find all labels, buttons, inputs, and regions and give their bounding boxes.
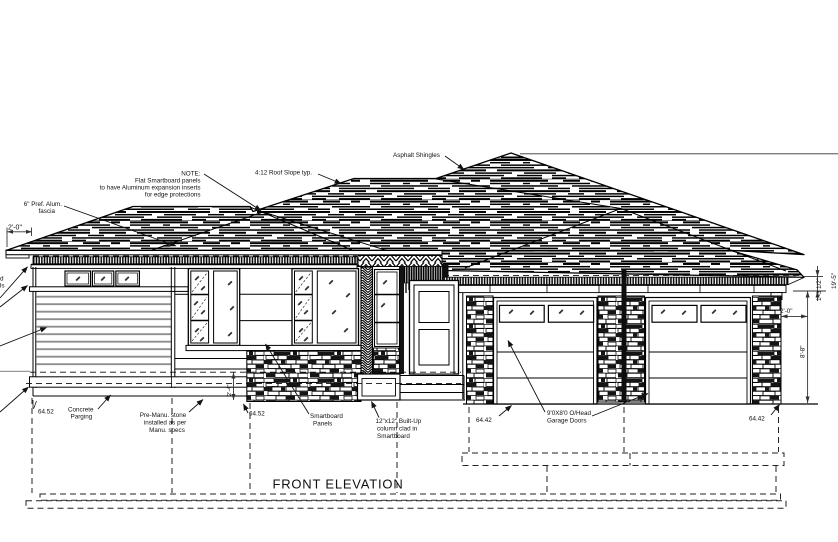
svg-text:Panels: Panels [313, 421, 332, 428]
svg-text:Concrete: Concrete [68, 407, 94, 414]
svg-text:Smartboard: Smartboard [377, 433, 410, 440]
svg-text:fascia: fascia [39, 208, 56, 215]
svg-text:64.52: 64.52 [249, 411, 265, 418]
svg-text:2'-0": 2'-0" [780, 308, 793, 315]
svg-text:2'-4": 2'-4" [227, 384, 233, 396]
svg-text:Asphalt Shingles: Asphalt Shingles [393, 152, 440, 159]
svg-text:NOTE:: NOTE: [181, 171, 200, 178]
svg-text:installed as per: installed as per [144, 420, 186, 427]
svg-text:4:12 Roof Slope typ.: 4:12 Roof Slope typ. [255, 170, 312, 177]
svg-text:64.42: 64.42 [476, 417, 492, 424]
svg-text:6" Pref. Alum.: 6" Pref. Alum. [24, 201, 63, 208]
svg-text:12"x12" Built-Up: 12"x12" Built-Up [376, 418, 422, 425]
svg-text:8'-8": 8'-8" [800, 345, 807, 358]
svg-text:64.52: 64.52 [38, 409, 54, 416]
svg-text:d: d [0, 276, 4, 283]
svg-text:FRONT ELEVATION: FRONT ELEVATION [273, 477, 404, 492]
svg-text:Flat Smartboard panels: Flat Smartboard panels [135, 178, 200, 185]
svg-text:for edge protections: for edge protections [145, 192, 201, 199]
svg-text:ls: ls [0, 283, 5, 290]
svg-text:column clad in: column clad in [377, 426, 418, 433]
svg-text:Pre-Manu. stone: Pre-Manu. stone [140, 412, 187, 419]
svg-text:9'0X8'0 O/Head: 9'0X8'0 O/Head [547, 410, 592, 417]
svg-text:64.42: 64.42 [749, 416, 765, 423]
svg-text:2'-0": 2'-0" [8, 225, 22, 232]
svg-text:Parging: Parging [71, 414, 93, 421]
svg-text:Smartboard: Smartboard [310, 413, 343, 420]
svg-text:Garage Doors: Garage Doors [547, 418, 587, 425]
svg-text:to have Aluminum expansion ins: to have Aluminum expansion inserts [100, 185, 201, 192]
svg-text:1'-3 1/2": 1'-3 1/2" [816, 278, 823, 301]
svg-text:Manu. specs: Manu. specs [149, 427, 185, 434]
svg-text:19'-5": 19'-5" [831, 273, 838, 289]
